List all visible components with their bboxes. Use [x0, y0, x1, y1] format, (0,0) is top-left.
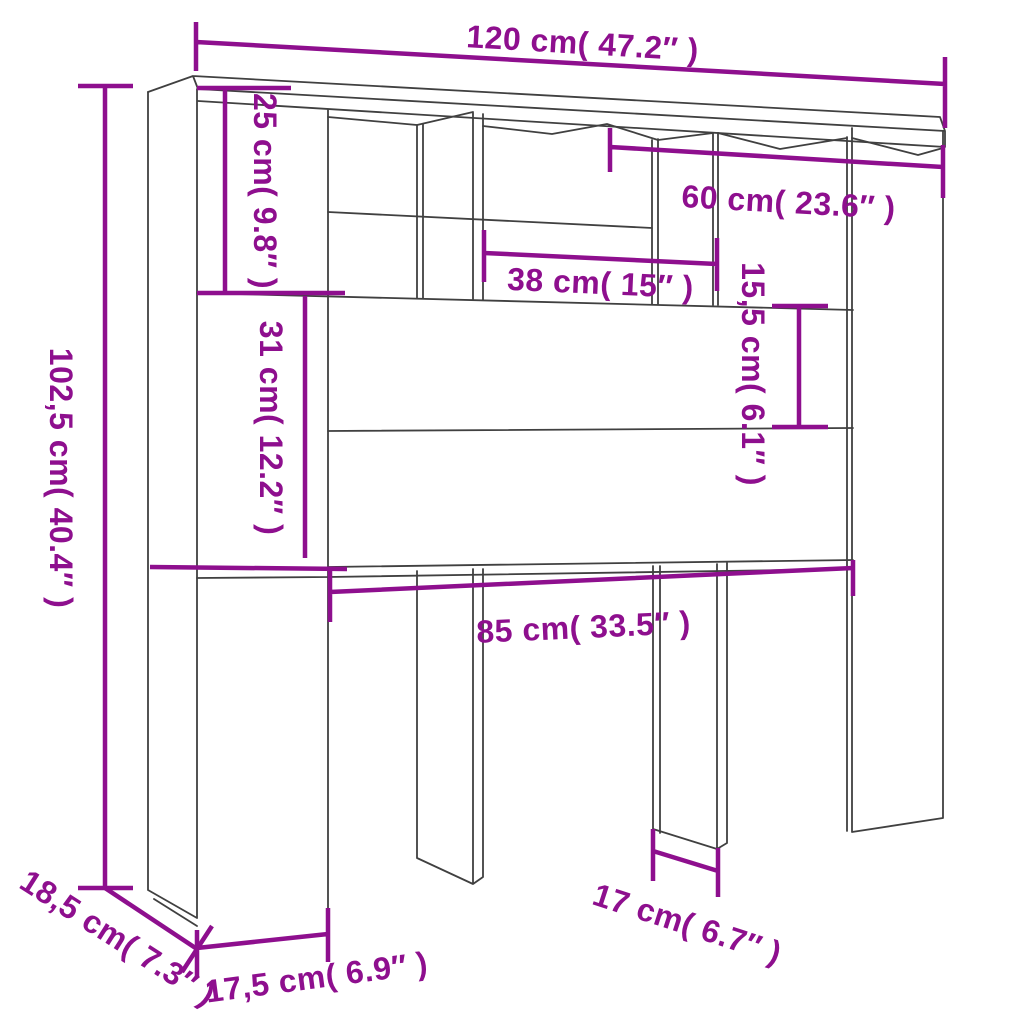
dimension-right-section-width: 60 cm( 23.6″ ) [610, 128, 943, 226]
dimension-top-section-height: 25 cm( 9.8″ ) [197, 88, 345, 293]
dimension-upper-panel-height-label: 31 cm( 12.2″ ) [253, 321, 289, 535]
dimension-middle-foot-width-label: 17 cm( 6.7″ ) [589, 876, 787, 971]
dimension-center-cubby-width-label: 38 cm( 15″ ) [506, 261, 694, 305]
dimension-depth: 18,5 cm( 7.3″ ) [14, 862, 222, 1013]
dimension-shelf-gap-height: 15,5 cm( 6.1″ ) [735, 262, 828, 486]
dimension-left-foot-width-label: 17,5 cm( 6.9″ ) [203, 945, 430, 1010]
dimension-lower-opening-width-label: 85 cm( 33.5″ ) [476, 604, 692, 650]
dimension-overall-height: 102,5 cm( 40.4″ ) [43, 86, 133, 888]
left-side-panel [148, 89, 197, 926]
dimension-center-cubby-width: 38 cm( 15″ ) [484, 230, 717, 305]
dimension-overall-height-line [78, 86, 133, 888]
right-side-panel [847, 128, 943, 832]
dimension-upper-panel-height-line [150, 296, 347, 569]
dimension-shelf-gap-height-line [772, 306, 828, 427]
left-middle-leg [417, 569, 483, 884]
dimension-overall-height-label: 102,5 cm( 40.4″ ) [43, 348, 79, 608]
dimension-left-foot-width: 17,5 cm( 6.9″ ) [197, 908, 430, 1010]
dimension-upper-panel-height: 31 cm( 12.2″ ) [150, 296, 347, 569]
dimension-top-section-height-label: 25 cm( 9.8″ ) [247, 93, 283, 289]
dimension-middle-foot-width: 17 cm( 6.7″ ) [589, 829, 787, 971]
dimension-shelf-gap-height-label: 15,5 cm( 6.1″ ) [735, 262, 771, 486]
headboard-cabinet-drawing: 120 cm( 47.2″ ) 102,5 cm( 40.4″ ) 25 cm(… [0, 0, 1024, 1024]
dimension-lines: 120 cm( 47.2″ ) 102,5 cm( 40.4″ ) 25 cm(… [14, 18, 945, 1013]
dimension-depth-label: 18,5 cm( 7.3″ ) [14, 862, 222, 1013]
dimension-diagram: 120 cm( 47.2″ ) 102,5 cm( 40.4″ ) 25 cm(… [0, 0, 1024, 1024]
